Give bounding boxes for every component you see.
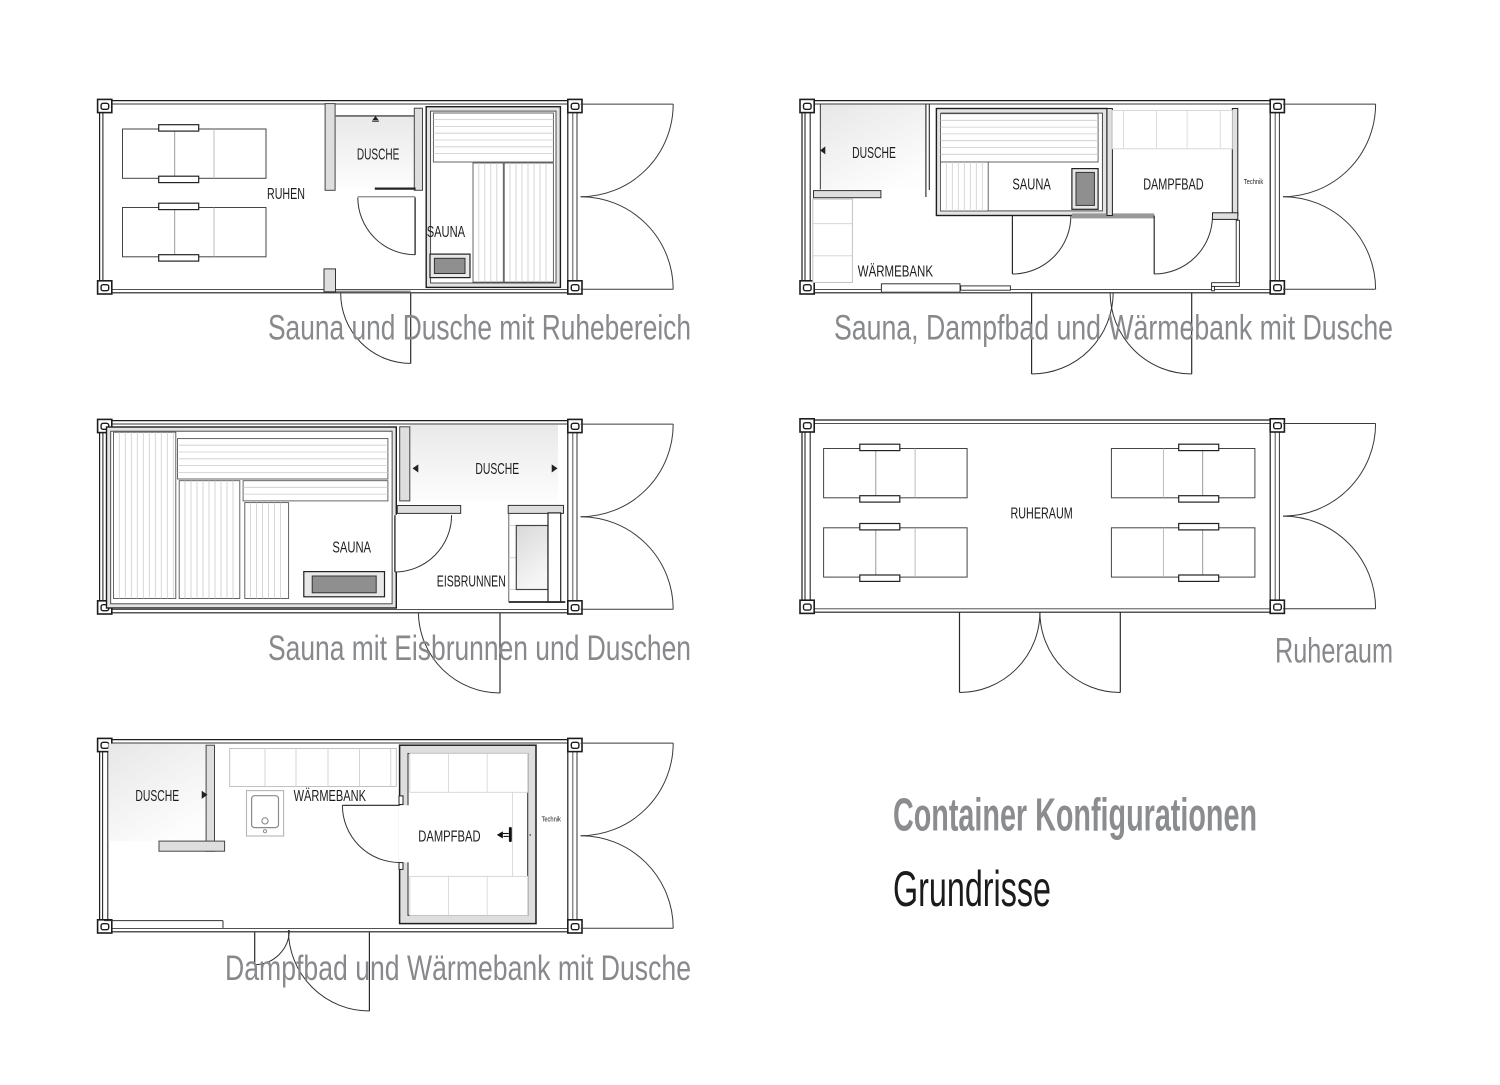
svg-text:Dampfbad und Wärmebank mit Dus: Dampfbad und Wärmebank mit Dusche — [225, 949, 691, 988]
svg-text:SAUNA: SAUNA — [332, 540, 371, 557]
svg-text:Container Konfigurationen: Container Konfigurationen — [893, 789, 1257, 841]
svg-text:SAUNA: SAUNA — [427, 224, 466, 241]
svg-text:EISBRUNNEN: EISBRUNNEN — [437, 574, 506, 591]
svg-text:SAUNA: SAUNA — [1012, 177, 1051, 194]
svg-text:DUSCHE: DUSCHE — [357, 146, 399, 163]
svg-text:WÄRMEBANK: WÄRMEBANK — [858, 263, 934, 280]
svg-text:DUSCHE: DUSCHE — [852, 145, 896, 162]
svg-text:DAMPFBAD: DAMPFBAD — [418, 828, 480, 845]
svg-text:Sauna und Dusche mit Ruheberei: Sauna und Dusche mit Ruhebereich — [268, 308, 691, 347]
svg-text:Technik: Technik — [542, 817, 562, 824]
svg-text:Technik: Technik — [1244, 179, 1264, 186]
svg-text:Sauna, Dampfbad und Wärmebank: Sauna, Dampfbad und Wärmebank mit Dusche — [834, 308, 1393, 347]
svg-text:Ruheraum: Ruheraum — [1275, 631, 1393, 670]
svg-text:DUSCHE: DUSCHE — [135, 788, 179, 805]
svg-text:WÄRMEBANK: WÄRMEBANK — [294, 788, 367, 805]
svg-text:Grundrisse: Grundrisse — [893, 861, 1051, 917]
svg-text:DAMPFBAD: DAMPFBAD — [1143, 177, 1203, 194]
svg-text:RUHEN: RUHEN — [267, 186, 305, 203]
svg-text:Sauna mit Eisbrunnen und Dusch: Sauna mit Eisbrunnen und Duschen — [268, 629, 691, 668]
svg-text:RUHERAUM: RUHERAUM — [1011, 506, 1073, 523]
svg-text:DUSCHE: DUSCHE — [475, 461, 519, 478]
